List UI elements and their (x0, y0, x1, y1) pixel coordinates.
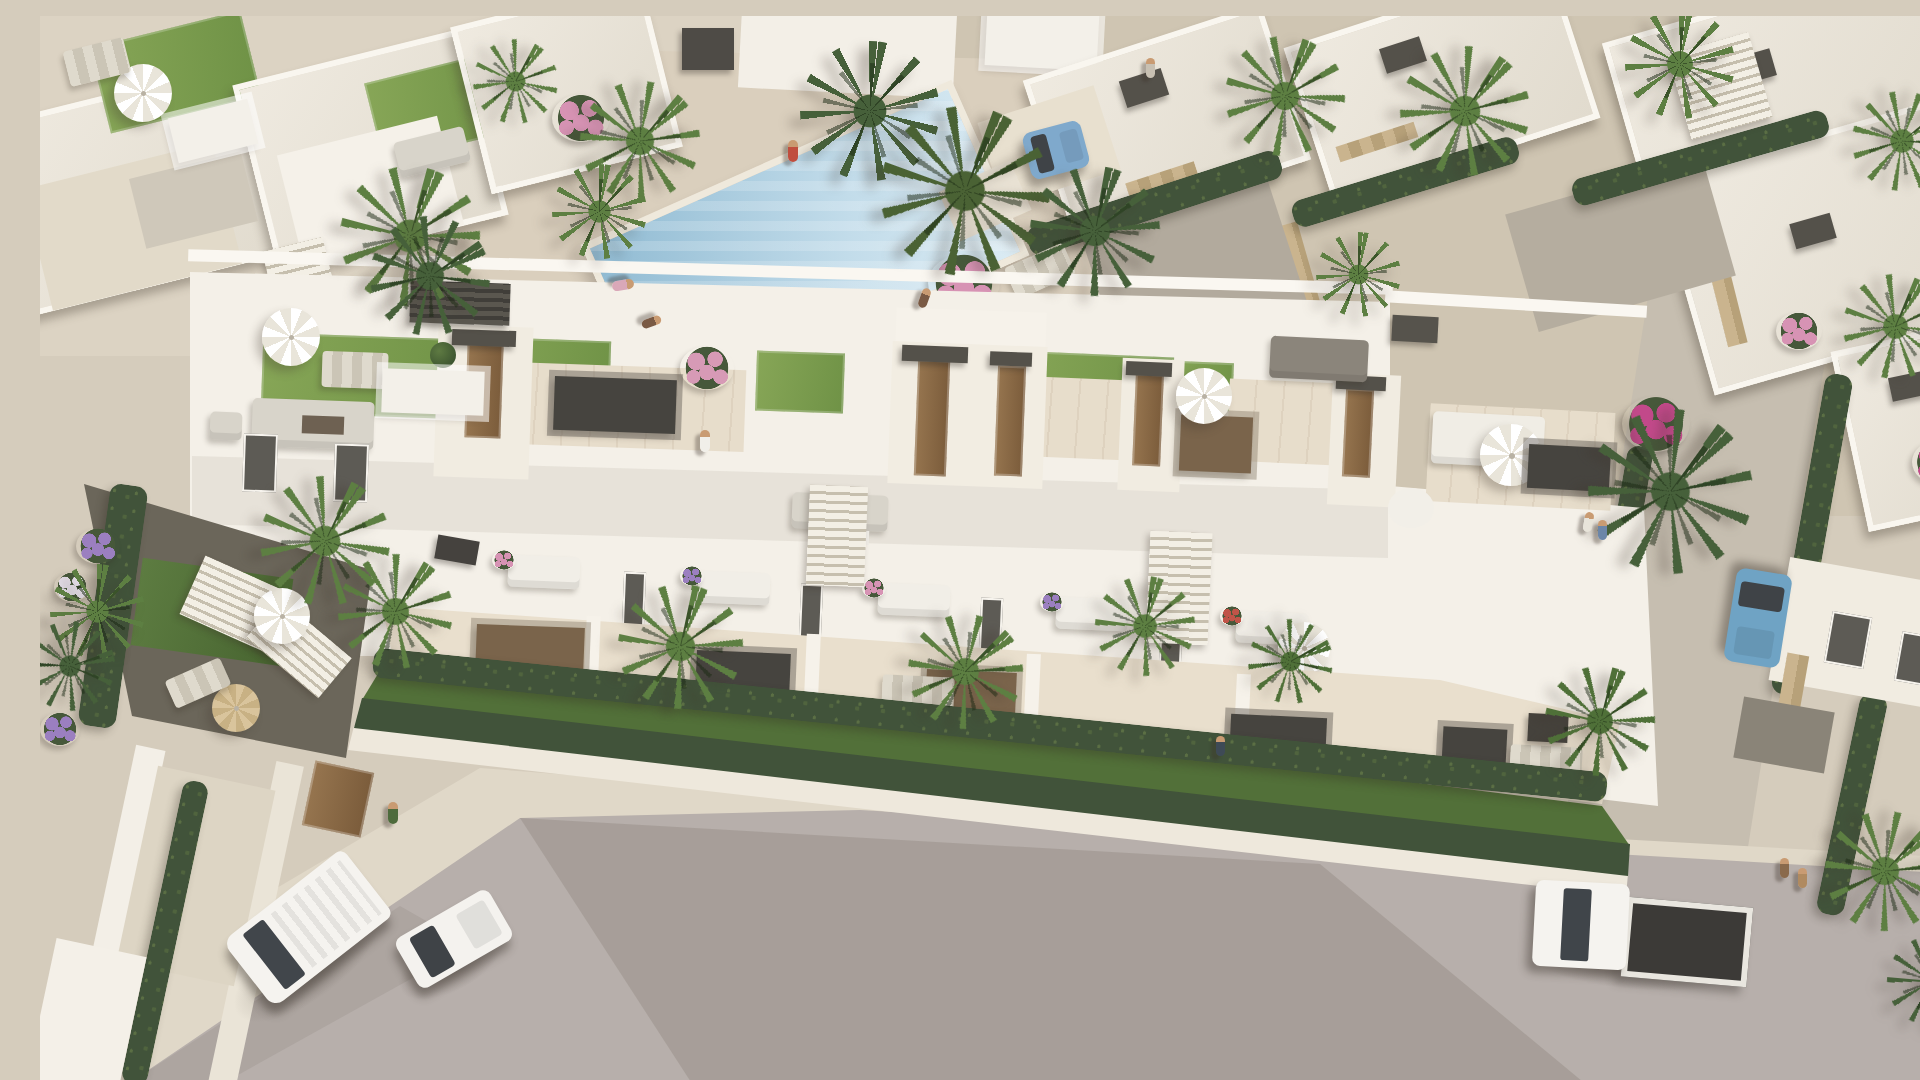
person-at-gate (388, 802, 398, 824)
person-walking (1798, 868, 1807, 888)
person-pool-deck (788, 140, 798, 162)
flower-bed (76, 528, 120, 564)
roof-box (1391, 315, 1438, 343)
stair-lintel (1126, 361, 1173, 377)
round-daybed (1388, 488, 1434, 528)
balcony-planter (492, 550, 516, 570)
person-terrace (1216, 736, 1225, 756)
stair-door (1132, 373, 1164, 466)
balcony-planter (1220, 606, 1244, 626)
palm-tree (1316, 232, 1401, 317)
pink-tree (680, 346, 734, 390)
facade-window (242, 433, 278, 492)
aerial-residential-render (40, 16, 1920, 1080)
rooftop-lawn (755, 350, 845, 413)
coffee-table (302, 415, 345, 434)
stair-door (1342, 388, 1374, 477)
bl-parasol (212, 684, 260, 732)
truck-cab (1532, 880, 1630, 971)
person-rooftop (1598, 520, 1607, 540)
stair-lintel (452, 329, 517, 347)
balcony-planter (862, 578, 886, 598)
stair-lintel (902, 345, 969, 364)
rooftop-dining (553, 376, 677, 434)
stair-door (914, 359, 950, 476)
truck-bed (1621, 897, 1753, 988)
balcony-planter (1040, 592, 1064, 612)
palm-tree (552, 164, 647, 259)
rooftop-loungers (321, 351, 388, 389)
balcony-sofa (507, 555, 580, 590)
balcony-window (799, 584, 823, 641)
rooftop-dining (381, 368, 484, 416)
stair-door (994, 366, 1026, 477)
mid-stairs (806, 485, 868, 587)
rooftop-dining (1179, 415, 1253, 474)
rooftop-armchair (210, 411, 243, 440)
person-walking (1780, 858, 1789, 878)
flower-bed (1776, 312, 1822, 350)
flower-bed (40, 712, 80, 746)
waste-bins (682, 28, 734, 70)
rooftop-parasol (1176, 368, 1232, 424)
rooftop-parasol (262, 308, 320, 366)
stair-lintel (990, 351, 1033, 367)
person-rooftop (700, 430, 710, 452)
balcony-sofa (877, 583, 950, 618)
person-path (1146, 58, 1155, 78)
potted-tree (430, 342, 456, 368)
rooftop-sofa-dark (1269, 336, 1369, 383)
